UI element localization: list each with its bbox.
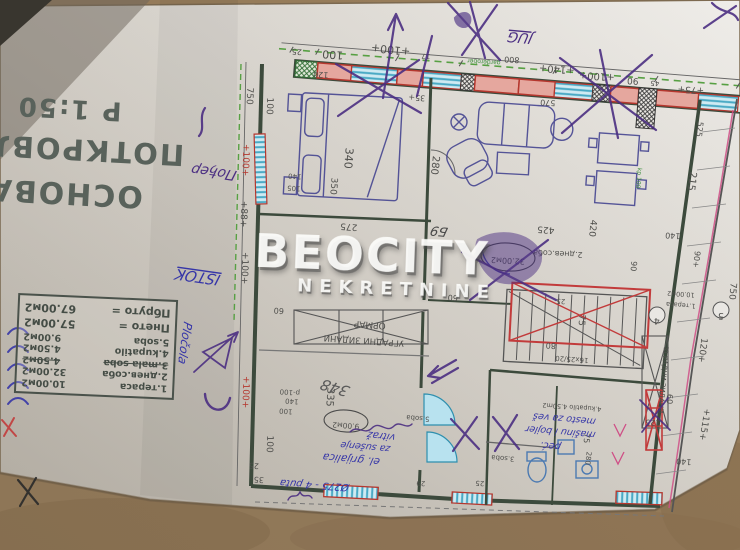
dim-label: 60 — [447, 293, 458, 303]
dim-label: 425 — [537, 223, 555, 234]
dim-label: 90 — [629, 261, 639, 272]
area-table: 1.тераса10.00м22.днев.соба32.00м23.mala … — [14, 294, 178, 400]
dim-label: 3.soba — [491, 453, 515, 463]
floorplan-drawing: 25100+100+17800+140++100+9045+75+750+100… — [0, 0, 740, 550]
dim-label: 25 — [475, 479, 484, 488]
dim-label: 280 — [428, 155, 441, 175]
area-table-rows: 1.тераса10.00м22.днев.соба32.00м23.mala … — [21, 330, 169, 394]
dim-label: +100+ — [239, 376, 250, 409]
dim-label: 140 — [285, 397, 299, 406]
gross-label: Пбруто = — [111, 304, 170, 321]
room-area: 10.00м2 — [21, 376, 66, 389]
dim-label: 100 — [264, 435, 275, 453]
dim-label: 100 — [279, 407, 293, 416]
dim-label: 420 — [586, 219, 598, 237]
dim-label: 340 — [341, 147, 355, 169]
floorplan-photo: 25100+100+17800+140++100+9045+75+750+100… — [0, 0, 740, 550]
dim-label: +100+ — [239, 144, 250, 177]
dim-label: 105 — [287, 184, 301, 193]
dim-label: 35 — [253, 475, 264, 485]
dim-label: 800 — [504, 54, 520, 64]
dim-label: 100 — [322, 47, 344, 61]
room-name: 5.soba — [133, 335, 169, 348]
room-area: 4.50м2 — [22, 353, 60, 366]
dim-label: 120 — [313, 69, 329, 79]
gross-value: 67.00м2 — [24, 300, 76, 316]
dim-label: 29 — [416, 479, 425, 488]
dim-label: 525 — [694, 121, 705, 137]
net-label: Пнето = — [118, 319, 170, 335]
dim-label: 750 — [726, 282, 737, 300]
dim-label: +75+ — [677, 83, 704, 95]
dim-label: 280 — [583, 451, 592, 465]
dim-label: p-100 — [279, 387, 300, 396]
dim-label: 140 — [288, 172, 302, 181]
net-value: 57.00м2 — [24, 315, 76, 331]
axis-bubble-label: 4 — [653, 315, 660, 325]
handwritten-note: peć. — [538, 439, 563, 453]
dim-label: +100+ — [238, 252, 249, 285]
dim-label: 60 — [273, 306, 284, 316]
dim-label: 75 — [576, 314, 587, 326]
room-name: 1.тераса — [120, 380, 168, 394]
dim-label: 80 — [545, 341, 556, 351]
dim-label: 750 — [244, 87, 255, 105]
dim-label: +88+ — [238, 201, 249, 228]
dim-label: 140 — [676, 456, 692, 466]
dim-label: 140 — [665, 230, 681, 240]
room-area: 4.50м2 — [23, 341, 61, 354]
dim-label: 350 — [327, 177, 338, 195]
dim-label: 5.soba — [406, 413, 430, 423]
dim-label: 275 — [340, 220, 358, 231]
dim-label: 25 — [248, 461, 259, 471]
dim-label: 215 — [685, 171, 698, 191]
plan-title: ОСНОВА ПОТКРОВЉА Р 1:50 — [0, 82, 195, 221]
dim-label: 25 — [556, 297, 565, 306]
room-area: 32.00м2 — [22, 364, 67, 377]
room-area: 9.00м2 — [23, 330, 61, 343]
dim-label: 45 — [650, 79, 659, 88]
dim-label: 25 — [291, 47, 302, 57]
handwritten-note: Б9 — [429, 222, 450, 238]
dim-label: 570 — [540, 97, 556, 107]
room-name: 4.kupatilo — [114, 345, 169, 359]
axis-bubble-label: 5 — [718, 310, 724, 320]
dim-label: 100 — [264, 97, 275, 115]
